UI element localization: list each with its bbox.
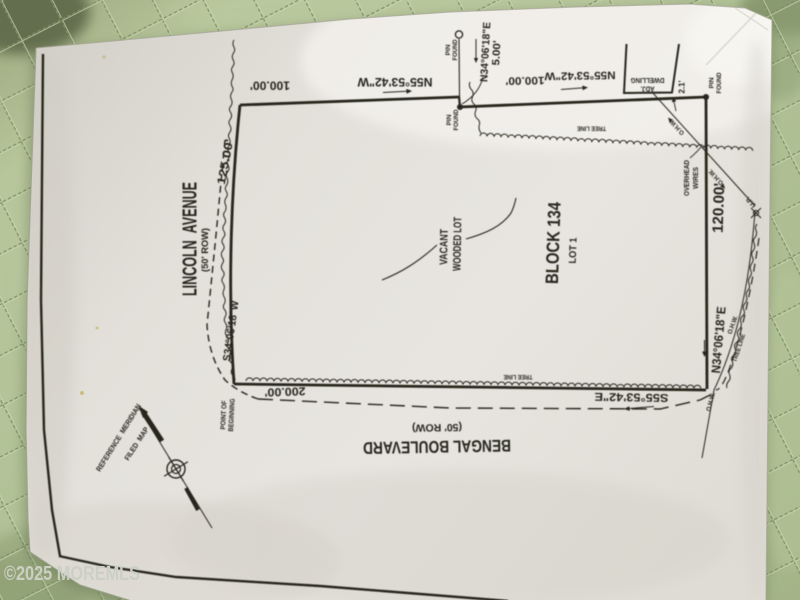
svg-text:FOUND: FOUND [716, 72, 723, 93]
svg-text:PIN: PIN [446, 114, 453, 125]
svg-text:©2025 MOREMLS: ©2025 MOREMLS [4, 563, 140, 585]
svg-text:DWELLING: DWELLING [630, 76, 664, 85]
svg-text:PIN: PIN [709, 77, 716, 88]
svg-text:TREE LINE: TREE LINE [576, 124, 606, 131]
svg-text:N55°53'42"W: N55°53'42"W [544, 68, 616, 81]
svg-text:LINCOLN AVENUE: LINCOLN AVENUE [179, 182, 201, 296]
svg-text:S55°53'42"E: S55°53'42"E [594, 390, 669, 403]
svg-text:BENGAL BOULEVARD: BENGAL BOULEVARD [363, 436, 511, 458]
svg-text:VACANT: VACANT [438, 229, 451, 265]
svg-text:OVERHEAD: OVERHEAD [682, 160, 691, 196]
svg-text:(50' ROW): (50' ROW) [412, 421, 462, 434]
svg-text:LOT 1: LOT 1 [568, 237, 580, 264]
svg-text:5.00': 5.00' [490, 40, 503, 66]
svg-text:WOODED LOT: WOODED LOT [451, 217, 464, 271]
svg-text:TREE LINE: TREE LINE [503, 373, 533, 380]
svg-text:100.00': 100.00' [505, 74, 545, 87]
svg-text:WIRES: WIRES [691, 167, 700, 189]
svg-text:FOUND: FOUND [453, 109, 460, 130]
svg-text:(50' ROW): (50' ROW) [200, 228, 211, 272]
svg-text:100.00': 100.00' [250, 78, 290, 90]
svg-text:N55°53'42"W: N55°53'42"W [357, 75, 432, 87]
svg-text:120.00': 120.00' [710, 183, 729, 234]
svg-text:200.00': 200.00' [264, 384, 306, 397]
svg-text:BLOCK 134: BLOCK 134 [542, 202, 565, 285]
svg-text:PIN: PIN [445, 44, 452, 55]
svg-text:FOUND: FOUND [452, 39, 459, 60]
svg-text:2.1': 2.1' [678, 80, 687, 93]
